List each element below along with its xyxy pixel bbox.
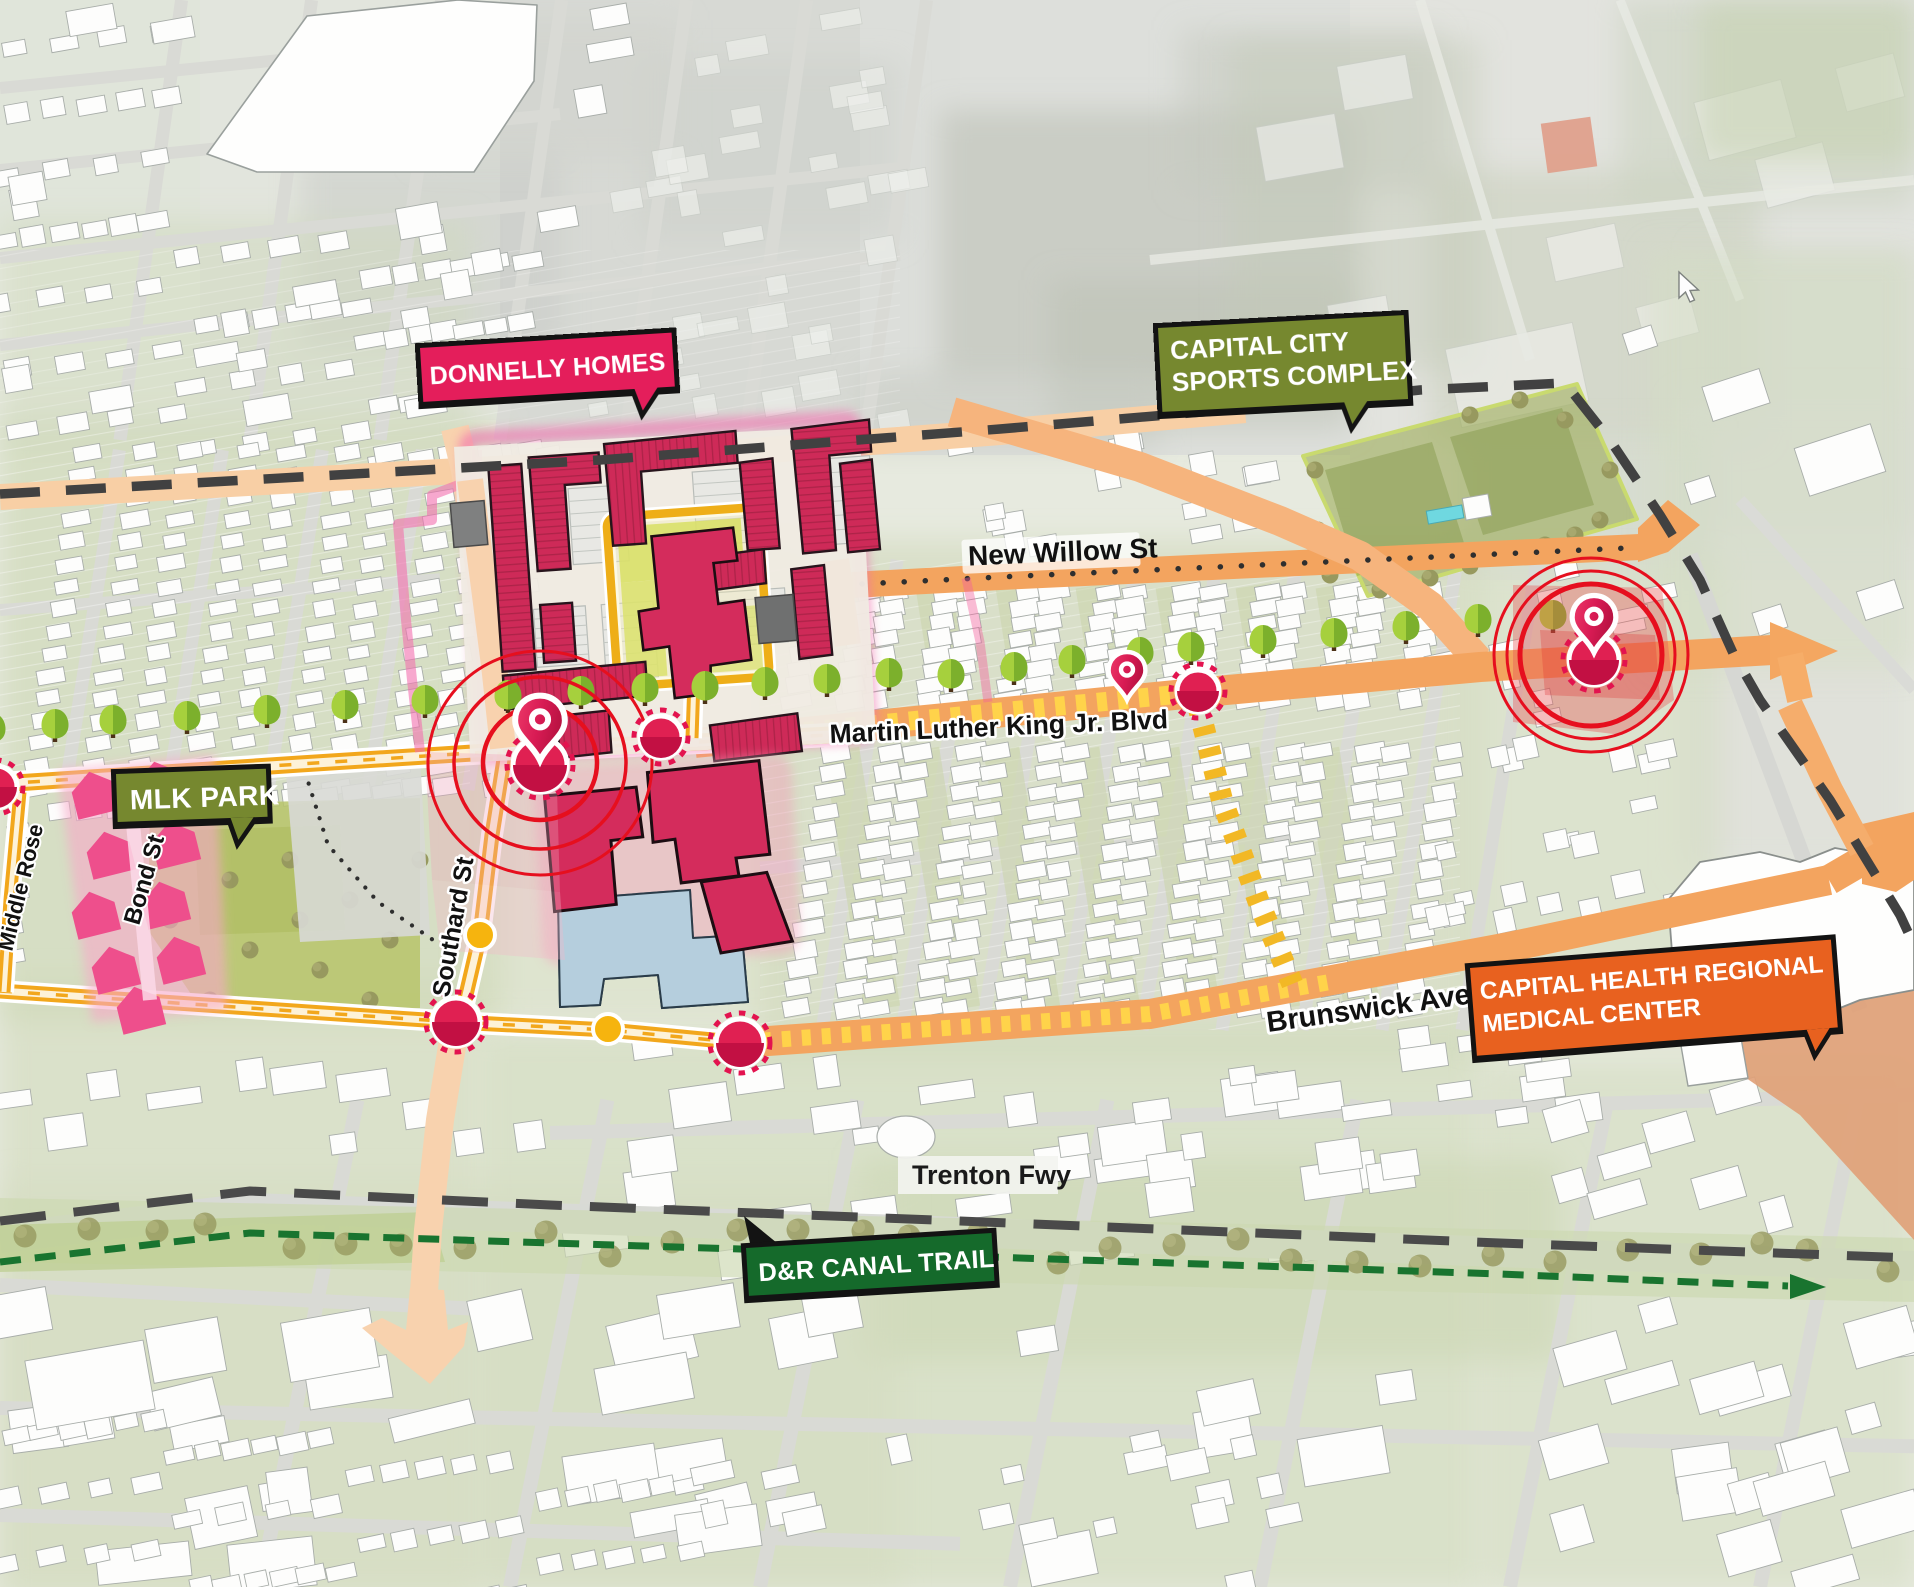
svg-text:MLK PARK: MLK PARK [129,779,280,815]
svg-text:Trenton Fwy: Trenton Fwy [912,1160,1071,1190]
